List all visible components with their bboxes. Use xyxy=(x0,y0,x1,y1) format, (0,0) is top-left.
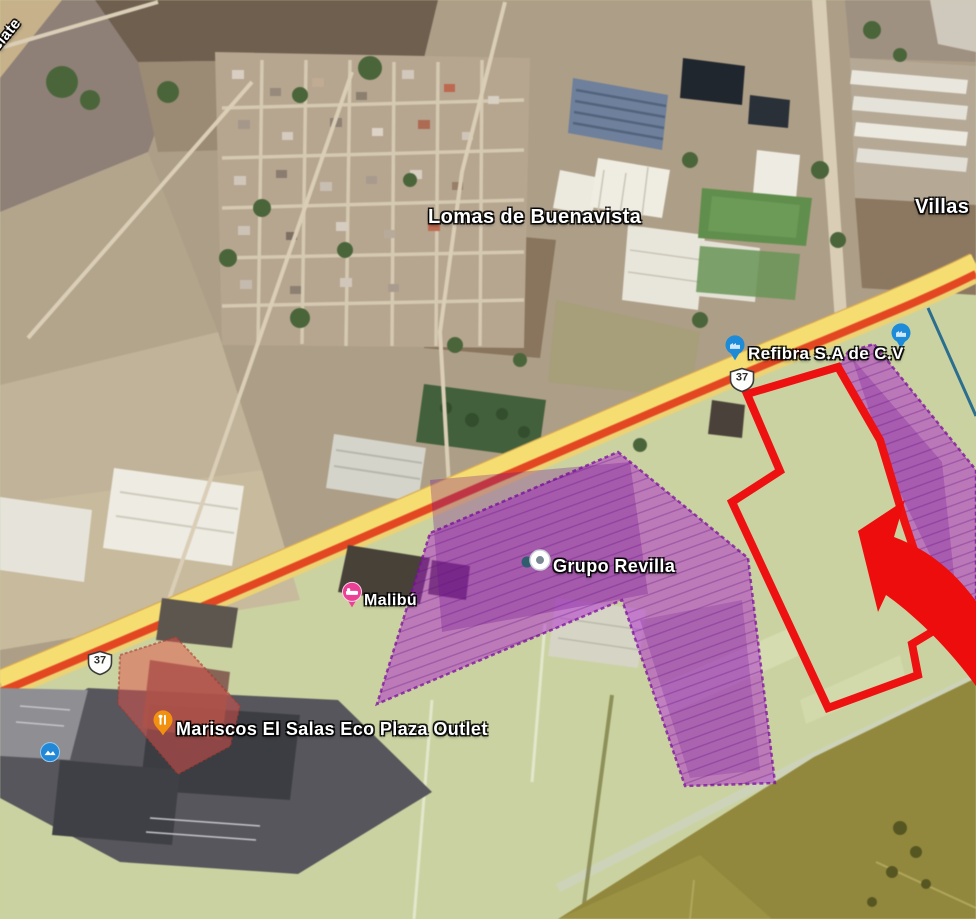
route-number: 37 xyxy=(87,655,114,667)
mariscos-restaurant-marker-icon[interactable] xyxy=(152,709,174,741)
route-shield-37-east: 37 xyxy=(729,368,756,393)
route-number: 37 xyxy=(729,372,756,384)
zoning-overlays xyxy=(0,0,976,919)
salmon-zone-overlay xyxy=(118,637,240,774)
parcel-boundary-blue-line xyxy=(928,308,976,416)
map-canvas[interactable]: 37 37 xyxy=(0,0,976,919)
malibu-lodging-marker-icon[interactable] xyxy=(341,581,363,613)
poi-label-malibu[interactable]: Malibú xyxy=(364,592,417,610)
route-shield-37-west: 37 xyxy=(87,651,114,676)
poi-label-refibra[interactable]: Refibra S.A de C.V xyxy=(748,344,904,364)
area-label-villas[interactable]: Villas xyxy=(915,196,969,219)
refibra-industry-marker-icon[interactable] xyxy=(724,334,746,366)
poi-label-grupo-revilla[interactable]: Grupo Revilla xyxy=(553,556,675,577)
grupo-revilla-marker-icon[interactable] xyxy=(520,548,554,577)
photo-marker-icon[interactable] xyxy=(39,741,61,768)
area-label-lomas-de-buenavista[interactable]: Lomas de Buenavista xyxy=(428,206,641,229)
poi-label-mariscos[interactable]: Mariscos El Salas Eco Plaza Outlet xyxy=(176,719,488,740)
